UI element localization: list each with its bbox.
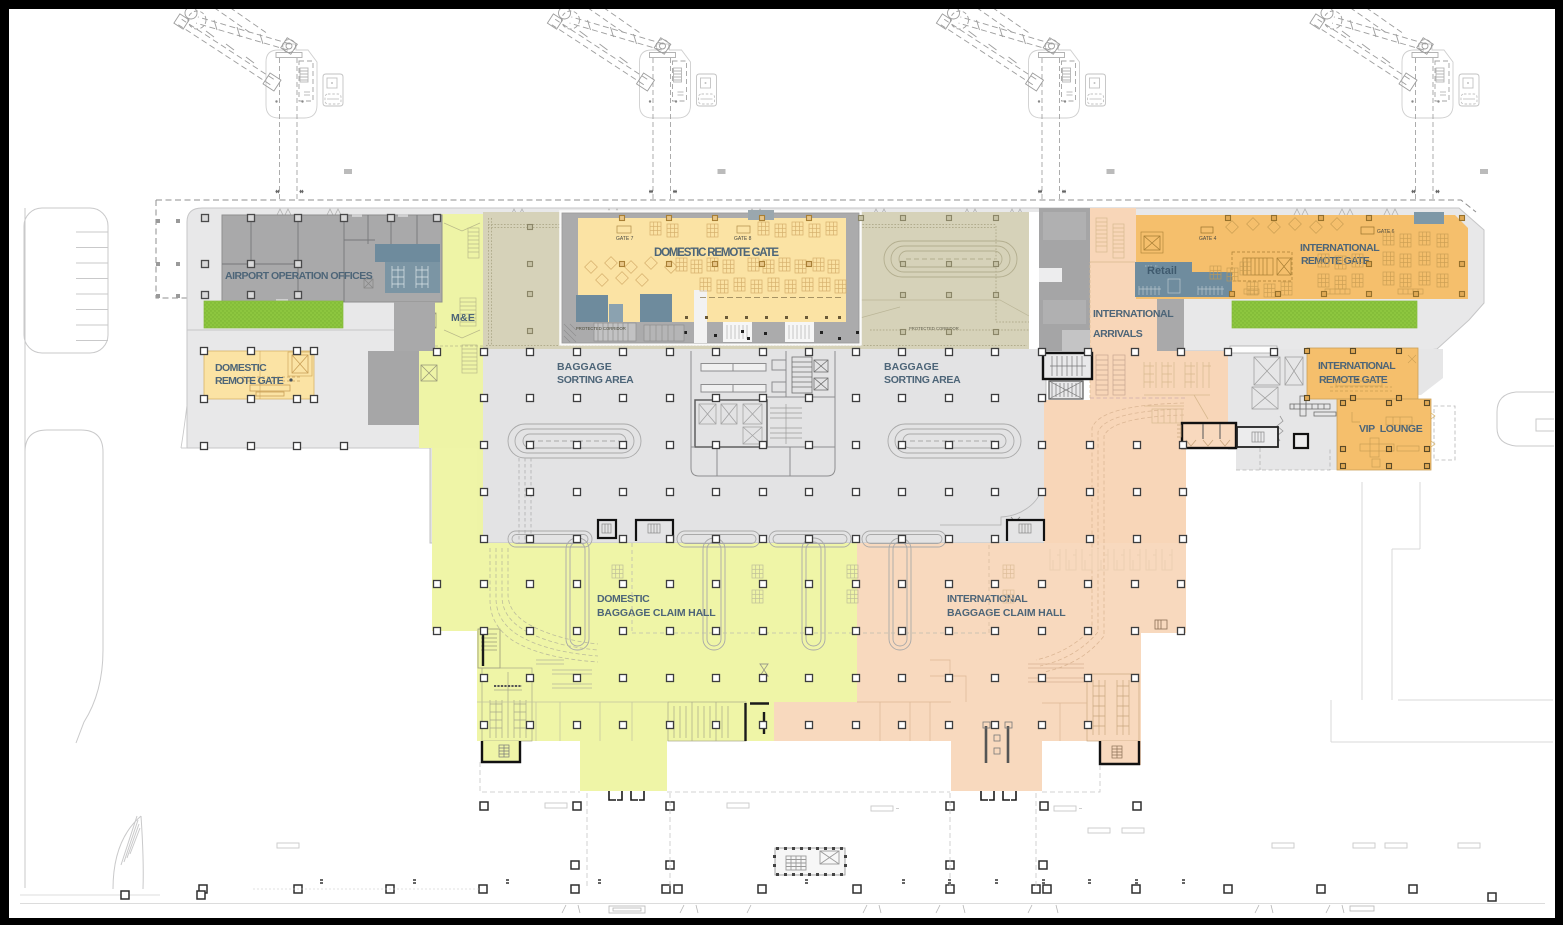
svg-text:REMOTE GATE: REMOTE GATE xyxy=(215,375,284,387)
svg-text:GATE 4: GATE 4 xyxy=(1199,236,1217,242)
svg-text:BAGGAGE: BAGGAGE xyxy=(884,361,939,373)
svg-text:VIP LOUNGE: VIP LOUNGE xyxy=(1359,423,1423,435)
svg-text:DOMESTIC REMOTE GATE: DOMESTIC REMOTE GATE xyxy=(654,247,779,259)
svg-text:INTERNATIONAL: INTERNATIONAL xyxy=(1318,360,1396,372)
svg-text:AIRPORT OPERATION OFFICES: AIRPORT OPERATION OFFICES xyxy=(225,270,373,282)
svg-text:INTERNATIONAL: INTERNATIONAL xyxy=(1093,308,1174,320)
svg-text:BAGGAGE CLAIM HALL: BAGGAGE CLAIM HALL xyxy=(947,607,1066,619)
svg-text:Retail: Retail xyxy=(1147,265,1177,277)
svg-text:DOMESTIC: DOMESTIC xyxy=(597,593,650,605)
svg-text:INTERNATIONAL: INTERNATIONAL xyxy=(1300,242,1380,254)
svg-text:GATE 8: GATE 8 xyxy=(734,236,752,242)
svg-text:BAGGAGE CLAIM HALL: BAGGAGE CLAIM HALL xyxy=(597,607,716,619)
svg-text:INTERNATIONAL: INTERNATIONAL xyxy=(947,593,1028,605)
svg-text:DOMESTIC: DOMESTIC xyxy=(215,362,267,374)
svg-text:SORTING AREA: SORTING AREA xyxy=(884,374,961,386)
svg-text:GATE 7: GATE 7 xyxy=(616,236,634,242)
svg-text:ARRIVALS: ARRIVALS xyxy=(1093,328,1143,340)
svg-text:SORTING AREA: SORTING AREA xyxy=(557,374,634,386)
svg-text:M&E: M&E xyxy=(451,312,475,324)
svg-text:BAGGAGE: BAGGAGE xyxy=(557,361,612,373)
svg-text:PROTECTED CORRIDOR: PROTECTED CORRIDOR xyxy=(576,326,626,331)
svg-text:REMOTE GATE: REMOTE GATE xyxy=(1319,374,1388,386)
